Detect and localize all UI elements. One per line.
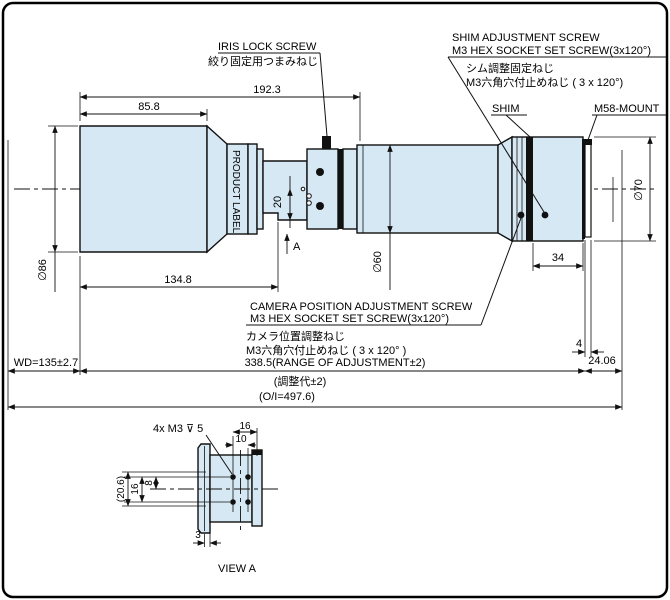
va-dim-10-text: 10 [235,434,247,445]
dim-2406-text: 24.06 [588,355,616,367]
iris-lock-label-en: IRIS LOCK SCREW [218,41,317,53]
view-a-hub [210,455,252,522]
shim-label: SHIM [492,103,520,115]
shim-adj-label-en2: M3 HEX SOCKET SET SCREW(3x120°) [452,45,651,57]
view-a-plate [252,450,262,526]
page-frame [3,3,667,597]
dim-wd-text: WD=135±2.7 [14,357,78,369]
view-a-thread-callout: 4x M3 ⊽ 5 [153,423,203,435]
dim-dia60-text: ∅60 [372,251,384,273]
dim-4-text: 4 [576,338,582,350]
dim-oi-text: (O/I=497.6) [259,391,315,403]
step-ring [257,149,263,229]
camera-adj-label-en1: CAMERA POSITION ADJUSTMENT SCREW [250,301,473,313]
va-dim-8-text: 8 [144,480,155,486]
view-a-arrow-label: A [293,241,301,253]
shim-adj-label-jp2: M3六角穴付止めねじ ( 3 x 120°) [466,75,623,89]
view-a-flange [198,444,210,533]
iris-pin-1 [301,187,305,191]
shim-adj-label-en1: SHIM ADJUSTMENT SCREW [452,32,600,44]
front-taper [207,126,227,252]
camera-adj-label-jp1: カメラ位置調整ねじ [246,329,345,343]
rear-barrel [512,137,583,241]
va-dim-3-text: 3 [195,530,201,541]
ring-2 [248,144,257,234]
dim-1348-text: 134.8 [164,274,192,286]
view-a-title: VIEW A [218,563,257,575]
dim-858-text: 85.8 [138,101,159,113]
lens-dimension-drawing-page: PRODUCT LABEL IRIS LOCK SCREW 絞り固定用つまみねじ… [0,0,670,600]
product-label-text: PRODUCT LABEL [230,150,241,234]
iris-separator-band [338,149,343,229]
shim-adj-label-jp1: シム調整固定ねじ [466,61,554,75]
neck [263,161,307,220]
iris-lock-knob [322,136,331,149]
iris-pin-2 [307,194,312,199]
mount-ring [585,141,591,237]
iris-ring [307,149,338,229]
dim-192-text: 192.3 [253,84,281,96]
dim-34-text: 34 [552,252,564,264]
va-dim-206-text: (20.6) [116,476,127,502]
front-barrel [80,126,207,252]
camera-adj-label-jp2: M3六角穴付止めねじ ( 3 x 120° ) [246,343,406,357]
dim-dia86-text: ∅86 [37,259,49,281]
iris-lock-label-jp: 絞り固定用つまみねじ [208,54,318,68]
mount-label: M58-MOUNT [594,103,660,115]
mid-barrel [357,145,498,233]
dim-dia70-text: ∅70 [633,179,645,201]
iris-pin-3 [307,201,312,206]
dim-20-text: 20 [272,196,284,208]
shim-adjustment-screw-dot [542,212,549,219]
dim-range-text: 338.5(RANGE OF ADJUSTMENT±2) [245,357,426,369]
ring-3 [343,149,357,229]
iris-screw-top [316,168,324,176]
iris-screw-bottom [316,202,324,210]
va-dim-16-top-text: 16 [239,421,251,432]
va-dim-16-left-text: 16 [130,483,141,495]
camera-adj-label-en2: M3 HEX SOCKET SET SCREW(3x120°) [250,313,449,325]
lens-dimension-drawing: PRODUCT LABEL IRIS LOCK SCREW 絞り固定用つまみねじ… [0,0,670,600]
dim-range-jp-text: (調整代±2) [274,374,326,388]
camera-position-screw-dot [518,212,525,219]
rear-taper [498,137,512,241]
